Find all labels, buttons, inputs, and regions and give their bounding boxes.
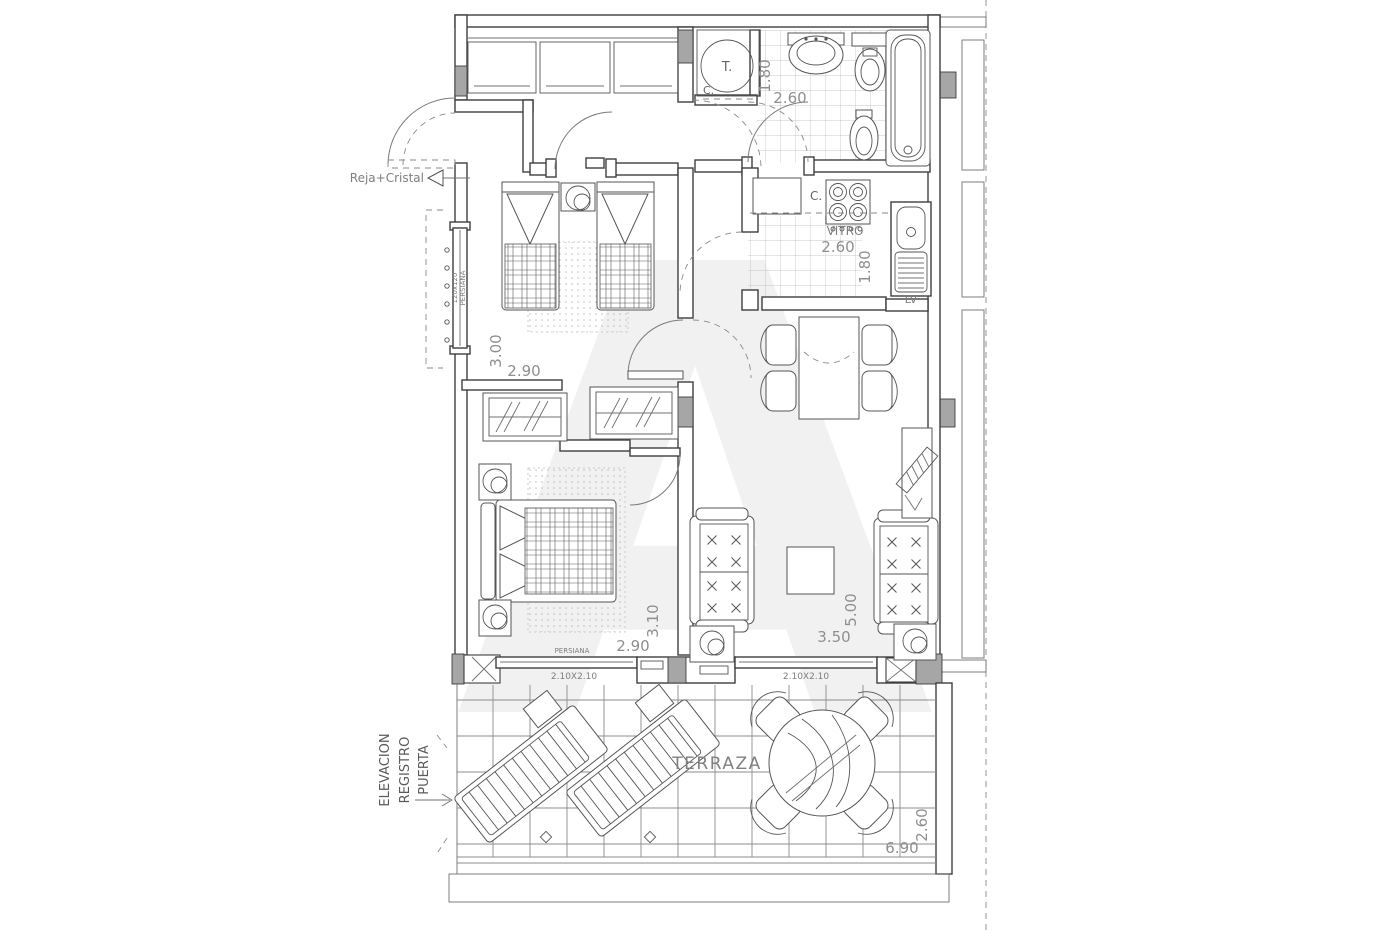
bedroom1-nightstand xyxy=(561,183,595,211)
kitchen-sink-label: LV xyxy=(905,293,918,306)
living-depth-dim: 5.00 xyxy=(842,593,860,626)
window-right-size: 2.10X2.10 xyxy=(783,672,830,682)
window-left-persiana-label: PERSIANA xyxy=(459,270,467,305)
kitchen-width-dim: 2.60 xyxy=(821,238,854,256)
bedroom2-width-dim: 2.90 xyxy=(616,637,649,655)
terrace-width-dim: 6.90 xyxy=(885,839,918,857)
persiana-bottom-label: PERSIANA xyxy=(555,647,590,655)
floor-plan-page: A xyxy=(0,0,1400,933)
window-left-size: 2.10X2.10 xyxy=(551,672,598,682)
bath-sink xyxy=(788,33,844,74)
terrace-fascia xyxy=(449,874,949,902)
kitchen-depth-dim: 1.80 xyxy=(856,250,874,283)
sofa-right xyxy=(874,510,938,634)
kitchen-counter-label: C. xyxy=(810,189,822,203)
bedroom1-width-dim: 2.90 xyxy=(507,362,540,380)
bath-width-dim: 2.60 xyxy=(773,89,806,107)
side-table-right xyxy=(894,624,936,660)
dining-table xyxy=(799,317,859,419)
kitchen-hob-label: VITRO xyxy=(827,224,864,238)
bedroom2-bed xyxy=(481,500,616,602)
bedroom2-nightstand-top xyxy=(479,464,511,500)
sofa-left xyxy=(690,508,754,632)
kitchen-sink xyxy=(891,202,931,296)
elevacion-line2: REGISTRO xyxy=(398,737,413,804)
elevacion-annotation: ELEVACION REGISTRO PUERTA xyxy=(378,733,452,852)
bedroom1-bed-right xyxy=(597,182,654,310)
hall-closets xyxy=(467,38,678,93)
toilet xyxy=(852,33,888,91)
terrace-label: TERRAZA xyxy=(671,754,761,774)
floor-plan-drawing: A xyxy=(0,0,1400,933)
coffee-table xyxy=(787,547,834,594)
bedroom1 xyxy=(502,182,654,332)
bedroom1-depth-dim: 3.00 xyxy=(487,334,505,367)
bath-depth-dim: 1.80 xyxy=(756,59,774,92)
elevacion-line3: PUERTA xyxy=(417,745,432,795)
elevacion-line1: ELEVACION xyxy=(378,733,393,806)
terrace-depth-dim: 2.60 xyxy=(913,808,931,841)
bedroom1-bed-left xyxy=(502,182,559,310)
reja-cristal-label: Reja+Cristal xyxy=(350,171,424,185)
boiler-label: T. xyxy=(721,60,733,75)
side-table-left xyxy=(690,626,734,662)
living-width-dim: 3.50 xyxy=(817,628,850,646)
kitchen-cabinet xyxy=(753,178,801,214)
entry-annotation: Reja+Cristal xyxy=(350,170,470,186)
bedroom2 xyxy=(479,464,625,636)
bedroom2-nightstand-bottom xyxy=(479,600,511,636)
window-left-size-label: 120x120 xyxy=(451,273,459,304)
bedroom2-depth-dim: 3.10 xyxy=(644,604,662,637)
bathtub xyxy=(886,30,930,166)
bedroom1-window-left: 120x120 PERSIANA xyxy=(426,210,470,368)
boiler-sub-label: C. xyxy=(703,84,714,97)
console-sideboard xyxy=(896,428,938,518)
